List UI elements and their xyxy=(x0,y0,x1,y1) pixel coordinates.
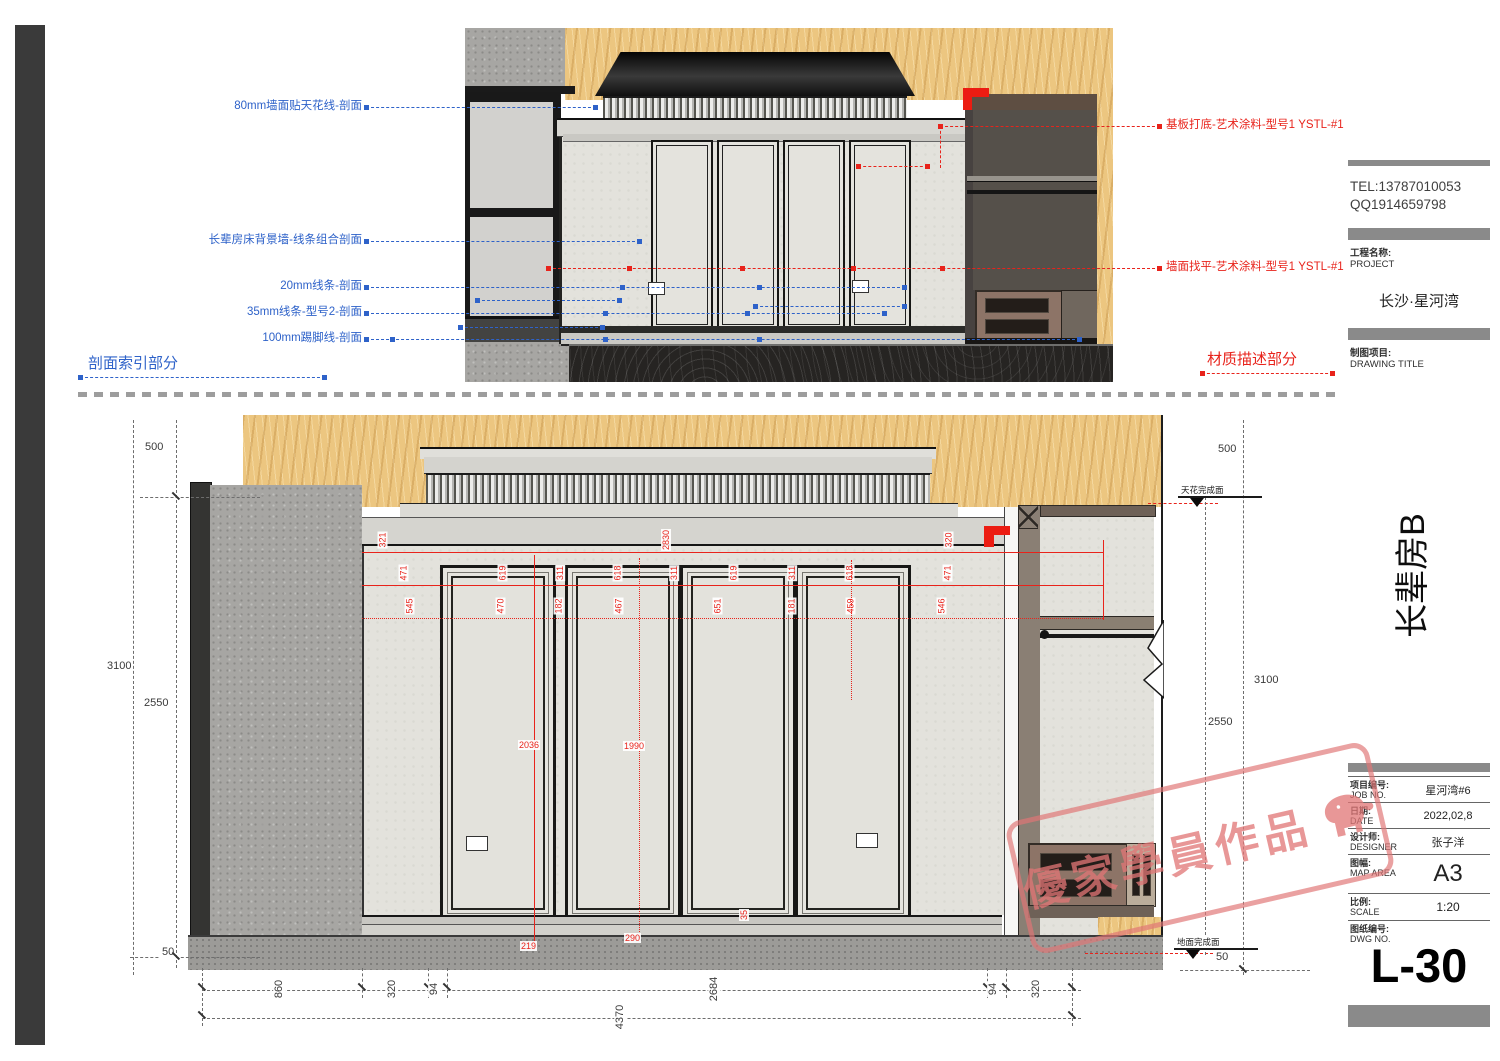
dim-label: 2684 xyxy=(708,975,720,1003)
wall-panel xyxy=(651,140,713,330)
leader-line xyxy=(366,241,640,242)
elev-red-corner xyxy=(984,526,1010,535)
drawer-slot xyxy=(985,298,1049,313)
elev-window-frame-strip xyxy=(190,482,212,939)
table-row: 设计师:DESIGNER 张子洋 xyxy=(1348,829,1490,855)
dim-label: 2036 xyxy=(518,740,540,750)
contact-info: TEL:13787010053 QQ1914659798 xyxy=(1350,178,1461,214)
elev-crown-step2 xyxy=(362,517,1004,547)
title-block-bar xyxy=(1348,763,1490,772)
material-desc-title-text: 材质描述部分 xyxy=(1207,351,1297,368)
drawing-sheet: 80mm墙面贴天花线-剖面 长辈房床背景墙-线条组合剖面 20mm线条-剖面 3… xyxy=(0,0,1500,1061)
title-block-bar xyxy=(1348,228,1490,240)
elev-wardrobe-rod xyxy=(1040,634,1154,638)
section-annotation: 长辈房床背景墙-线条组合剖面 xyxy=(80,234,362,247)
section-index-underline xyxy=(80,377,325,378)
wall-panel xyxy=(783,140,845,330)
dim-label: 860 xyxy=(273,978,285,1000)
wall-corner-block xyxy=(465,28,565,88)
title-block-bar xyxy=(1348,328,1490,340)
red-corner-mark-leg xyxy=(963,97,972,110)
wardrobe-drawer-side xyxy=(1061,290,1101,340)
wardrobe xyxy=(965,94,1113,344)
wardrobe-wood-edge xyxy=(1097,28,1113,344)
elev-wardrobe-toprail xyxy=(1040,505,1156,517)
dim-label: 1990 xyxy=(623,741,645,751)
page-edge-bar xyxy=(15,25,45,1045)
dim-extension-line xyxy=(133,420,134,975)
baseboard-line xyxy=(561,326,969,333)
material-annotation: 墙面找平-艺术涂料-型号1 YSTL-#1 xyxy=(1166,261,1344,274)
dim-label: 320 xyxy=(386,978,398,1000)
crown-cap xyxy=(595,52,915,96)
panel-frame-inner xyxy=(806,576,900,910)
wardrobe-shelf xyxy=(967,176,1113,182)
post-cross-cap xyxy=(1019,506,1038,529)
wall-panel-inner xyxy=(656,145,708,325)
dim-extension-line xyxy=(130,957,260,958)
dim-label: 500 xyxy=(143,441,165,453)
section-annotation-label: 20mm线条-剖面 xyxy=(280,280,362,292)
dim-label: 618 xyxy=(613,564,623,581)
break-line-zigzag xyxy=(1138,620,1164,716)
wardrobe-rod xyxy=(967,190,1113,194)
dim-label: 311 xyxy=(669,565,679,581)
project-label-cn: 工程名称: xyxy=(1350,248,1394,259)
project-name: 长沙·星河湾 xyxy=(1348,290,1490,311)
row-value: 星河湾#6 xyxy=(1406,777,1490,802)
dim-label: 94 xyxy=(428,981,440,997)
drawer-slot xyxy=(1040,853,1112,871)
dim-label: 290 xyxy=(624,933,641,943)
drawing-title-label: 制图项目: DRAWING TITLE xyxy=(1350,348,1424,370)
row-value: A3 xyxy=(1406,855,1490,893)
material-desc-title: 材质描述部分 xyxy=(1207,348,1297,369)
window xyxy=(465,92,561,332)
dim-label: 311 xyxy=(555,565,565,581)
drawer-slot xyxy=(1143,854,1151,896)
dim-chain-line xyxy=(202,990,1081,991)
table-row: 比例:SCALE 1:20 xyxy=(1348,894,1490,921)
carpet-floor xyxy=(569,344,1113,382)
elev-crown-step1 xyxy=(400,503,958,518)
drawer-slot xyxy=(1132,854,1140,896)
dim-label: 219 xyxy=(520,941,537,951)
section-annotation: 20mm线条-剖面 xyxy=(80,280,362,293)
wall-panel-inner xyxy=(788,145,840,325)
drawer-slot xyxy=(1040,879,1112,897)
row-label: 项目编号:JOB NO. xyxy=(1350,780,1389,800)
row-label: 图幅:MAP AREA xyxy=(1350,858,1396,878)
leader-line-vertical xyxy=(940,126,941,168)
dim-label: 471 xyxy=(399,564,409,581)
leader-line xyxy=(366,339,1080,340)
dim-label: 467 xyxy=(614,597,624,614)
leader-segment xyxy=(460,327,603,328)
leader-segment xyxy=(858,166,928,167)
material-annotation-label: 基板打底-艺术涂料-型号1 YSTL-#1 xyxy=(1166,119,1344,131)
elev-wardrobe-gap xyxy=(1004,507,1019,935)
elev-drawers-side xyxy=(1126,843,1156,907)
dim-extension-line xyxy=(362,968,363,998)
level-marker-icon xyxy=(1190,498,1204,507)
sheet-number-text: L-30 xyxy=(1371,939,1468,992)
dim-label: 311 xyxy=(787,565,797,581)
section-3d-view xyxy=(465,28,1113,382)
elev-crown-cap2 xyxy=(424,457,932,474)
section-annotation-label: 35mm线条-型号2-剖面 xyxy=(247,306,362,318)
drawer-slot xyxy=(985,319,1049,334)
table-row: 图幅:MAP AREA A3 xyxy=(1348,855,1490,894)
wardrobe-back xyxy=(973,110,1099,290)
dim-label: 50 xyxy=(1214,951,1230,963)
dim-label: 471 xyxy=(943,564,953,581)
red-dim-line-dotted xyxy=(362,618,1103,619)
row-label: 比例:SCALE xyxy=(1350,897,1380,917)
project-label-en: PROJECT xyxy=(1350,259,1394,270)
tel: TEL:13787010053 xyxy=(1350,178,1461,196)
section-annotation: 80mm墙面贴天花线-剖面 xyxy=(80,100,362,113)
red-dim-line-vertical xyxy=(1103,540,1104,620)
dim-label: 182 xyxy=(554,597,564,614)
section-divider xyxy=(78,392,1336,397)
drawing-label-cn: 制图项目: xyxy=(1350,348,1424,359)
red-dim-line xyxy=(362,585,1103,586)
elev-wood-bottom xyxy=(1098,917,1162,935)
section-annotation-label: 80mm墙面贴天花线-剖面 xyxy=(234,100,362,112)
elev-outlet-plate xyxy=(856,833,878,848)
section-index-title-text: 剖面索引部分 xyxy=(88,355,178,372)
project-label: 工程名称: PROJECT xyxy=(1350,248,1394,270)
dim-label: 2550 xyxy=(1206,716,1234,728)
dim-label: 321 xyxy=(378,531,388,548)
elev-crown-flute xyxy=(426,473,930,507)
dim-extension-line xyxy=(176,420,177,968)
dim-label: 500 xyxy=(1216,443,1238,455)
wall-panel-inner xyxy=(722,145,774,325)
dim-label: 618 xyxy=(845,564,855,581)
dim-label: 320 xyxy=(1030,978,1042,1000)
red-corner-mark xyxy=(963,88,989,97)
dim-label: 651 xyxy=(713,597,723,614)
wardrobe-drawers xyxy=(975,290,1063,342)
red-level-dash xyxy=(1148,503,1218,504)
dim-label: 619 xyxy=(729,564,739,581)
dim-label: 35 xyxy=(739,909,749,921)
wall-panel xyxy=(717,140,779,330)
dim-extension-line xyxy=(140,497,260,498)
panel-frame-inner xyxy=(691,576,785,910)
wall-panel-inner xyxy=(854,145,906,325)
row-value: 1:20 xyxy=(1406,894,1490,920)
project-name-text: 长沙·星河湾 xyxy=(1379,293,1459,310)
window-frame-mid xyxy=(465,208,561,217)
dim-label: 2830 xyxy=(661,529,671,551)
drawing-title-text: 长辈房B xyxy=(1385,513,1434,638)
section-annotation-label: 长辈房床背景墙-线条组合剖面 xyxy=(209,234,362,246)
section-index-title: 剖面索引部分 xyxy=(88,352,178,373)
elev-red-corner-leg xyxy=(984,535,994,547)
title-block-table: 项目编号:JOB NO. 星河湾#6 日期:DATE 2022,02,8 设计师… xyxy=(1348,776,1490,945)
dim-extension-line xyxy=(447,968,448,998)
outlet-plate xyxy=(648,282,665,295)
red-dim-line xyxy=(362,552,1103,553)
panel-frame-mid xyxy=(687,572,789,914)
table-row: 日期:DATE 2022,02,8 xyxy=(1348,803,1490,829)
dim-label: 94 xyxy=(987,981,999,997)
dim-extension-line xyxy=(1243,420,1244,975)
drawing-label-en: DRAWING TITLE xyxy=(1350,359,1424,370)
dim-label: 320 xyxy=(944,531,954,548)
dim-label: 4370 xyxy=(614,1003,626,1031)
leader-line xyxy=(940,126,1160,127)
table-row: 项目编号:JOB NO. 星河湾#6 xyxy=(1348,777,1490,803)
level-marker-icon xyxy=(1186,950,1200,959)
dim-label: 546 xyxy=(937,597,947,614)
section-annotation-label: 100mm踢脚线-剖面 xyxy=(262,332,362,344)
red-dim-line-vertical xyxy=(534,555,535,947)
row-label: 设计师:DESIGNER xyxy=(1350,832,1397,852)
material-annotation: 基板打底-艺术涂料-型号1 YSTL-#1 xyxy=(1166,119,1344,132)
dim-label: 3100 xyxy=(1252,674,1280,686)
row-label: 日期:DATE xyxy=(1350,806,1373,826)
level-label-ceiling: 天花完成面 xyxy=(1181,484,1224,496)
elev-rod-knob xyxy=(1040,630,1049,639)
elev-floor xyxy=(188,935,1163,970)
row-value: 2022,02,8 xyxy=(1406,803,1490,828)
wall-panel xyxy=(849,140,911,330)
leader-segment xyxy=(755,306,905,307)
panel-frame-mid xyxy=(802,572,904,914)
title-block-bar xyxy=(1348,1005,1490,1027)
drawing-title-vertical: 长辈房B xyxy=(1352,490,1467,660)
leader-line xyxy=(366,107,596,108)
dim-label: 619 xyxy=(498,564,508,581)
dim-label: 470 xyxy=(496,597,506,614)
section-annotation: 35mm线条-型号2-剖面 xyxy=(80,306,362,319)
dim-total-line xyxy=(202,1018,1081,1019)
red-dim-line-vertical-dotted xyxy=(851,560,852,700)
dim-label: 181 xyxy=(787,597,797,614)
material-annotation-label: 墙面找平-艺术涂料-型号1 YSTL-#1 xyxy=(1166,261,1344,273)
dim-label: 2550 xyxy=(142,697,170,709)
leader-line xyxy=(366,287,905,288)
dim-label: 545 xyxy=(405,597,415,614)
window-frame-top xyxy=(465,92,561,102)
leader-line xyxy=(366,313,885,314)
dim-label: 3100 xyxy=(105,660,133,672)
row-value: 张子洋 xyxy=(1406,829,1490,854)
level-label-floor: 地面完成面 xyxy=(1177,936,1220,948)
elev-outlet-plate xyxy=(466,836,488,851)
qq: QQ1914659798 xyxy=(1350,196,1461,214)
title-block-bar xyxy=(1348,160,1490,166)
leader-segment xyxy=(477,300,620,301)
section-annotation: 100mm踢脚线-剖面 xyxy=(80,332,362,345)
elev-side-wall xyxy=(210,485,362,968)
sheet-number: L-30 xyxy=(1348,938,1490,993)
sill-cabinet xyxy=(465,342,583,382)
material-desc-underline xyxy=(1202,373,1333,374)
dim-extension-line xyxy=(1006,968,1007,998)
leader-line xyxy=(548,268,1160,269)
elev-drawers xyxy=(1028,843,1130,909)
